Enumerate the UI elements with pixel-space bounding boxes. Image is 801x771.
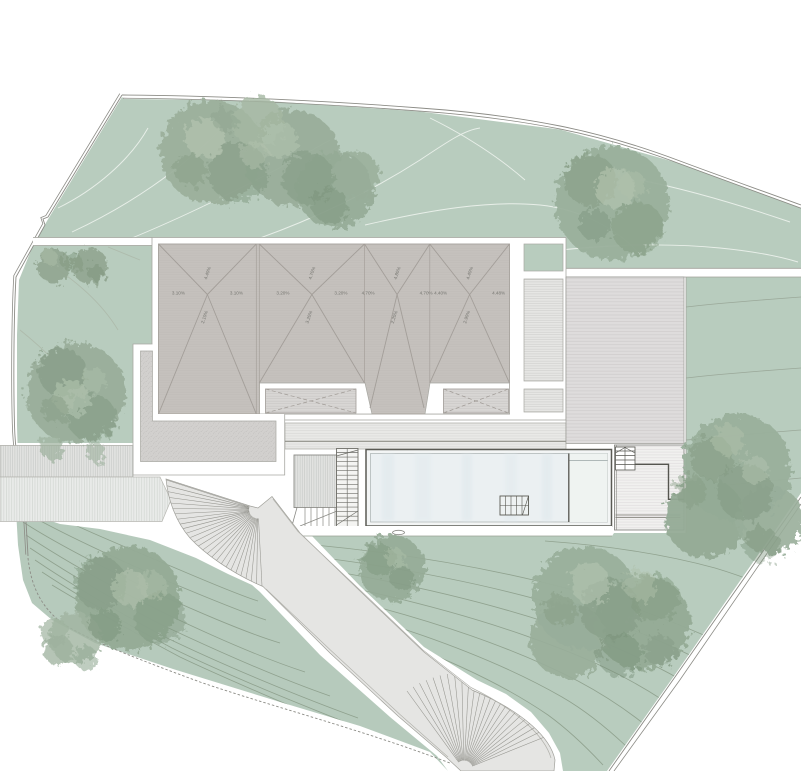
svg-text:3.10%: 3.10% (230, 291, 243, 296)
svg-text:4.40%: 4.40% (434, 291, 447, 296)
svg-text:3.20%: 3.20% (276, 291, 289, 296)
svg-text:3.20%: 3.20% (334, 291, 347, 296)
svg-text:4.70%: 4.70% (362, 291, 375, 296)
svg-text:4.48%: 4.48% (492, 291, 505, 296)
svg-text:3.10%: 3.10% (172, 291, 185, 296)
svg-text:4.70%: 4.70% (420, 291, 433, 296)
